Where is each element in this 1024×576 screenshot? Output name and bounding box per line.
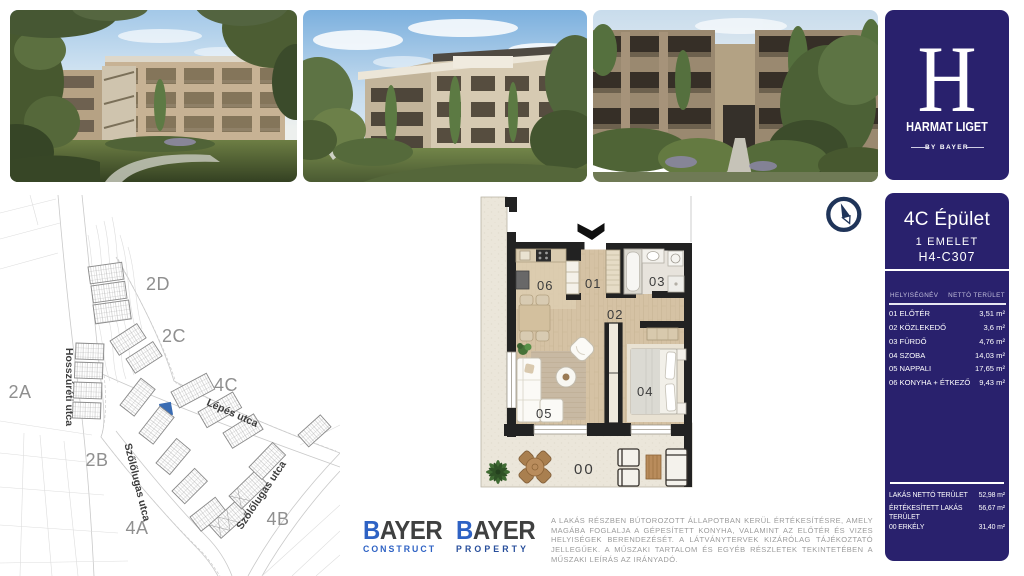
svg-text:01: 01 [585,276,601,291]
svg-text:2D: 2D [146,274,170,294]
svg-text:Szőlőlugas utca: Szőlőlugas utca [121,442,152,523]
svg-text:Hosszúréti utca: Hosszúréti utca [63,348,75,426]
svg-text:06: 06 [537,278,553,293]
svg-text:00: 00 [574,461,595,478]
svg-text:04: 04 [637,384,653,399]
svg-text:4B: 4B [266,509,289,529]
svg-text:4C: 4C [214,375,238,395]
svg-text:03: 03 [649,274,665,289]
svg-text:05: 05 [536,406,552,421]
svg-text:02: 02 [607,307,623,322]
svg-text:2B: 2B [85,450,108,470]
svg-text:2A: 2A [8,382,31,402]
svg-text:2C: 2C [162,326,186,346]
